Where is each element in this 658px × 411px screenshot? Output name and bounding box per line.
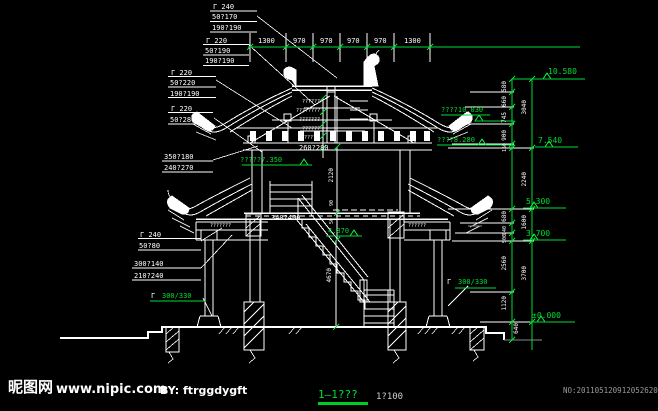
stack1-line2: 50?170 — [212, 13, 237, 21]
elevation-10030: ????10.030 — [441, 106, 483, 114]
stack5-line2: 240?270 — [164, 164, 194, 172]
top-dim-970-4: 970 — [374, 37, 387, 45]
dim-4670: 4670 — [326, 268, 334, 282]
top-dim-970-1: 970 — [293, 37, 306, 45]
dim-50: 50 — [330, 218, 335, 224]
stack4-line2: 50?280 — [170, 116, 195, 124]
stack3-line3: 190?190 — [170, 90, 200, 98]
roof-note-5: ????? — [301, 136, 316, 141]
stack6-line1: Γ 240 — [140, 231, 161, 239]
elevation-3700: 3.700 — [526, 230, 550, 238]
site-logo[interactable]: 昵图网 — [8, 383, 53, 391]
dim-680: 680 — [501, 211, 509, 222]
stack2-line3: 190?190 — [205, 57, 235, 65]
drawing-title: 1—1??? — [318, 391, 358, 399]
drawing-scale: 1?100 — [376, 393, 403, 401]
stack2-line2: 50?190 — [205, 47, 230, 55]
top-dim-1300-right: 1300 — [404, 37, 421, 45]
beam-tiny-note-left: ??????? — [210, 224, 231, 229]
elevation-5300: 5.300 — [526, 198, 550, 206]
dim-500: 500 — [503, 234, 508, 243]
elevation-7540: 7.540 — [538, 137, 562, 145]
stack3-line2: 50?220 — [170, 79, 195, 87]
top-dim-1300-left: 1300 — [258, 37, 275, 45]
bracket-right-marker: Γ — [447, 278, 451, 286]
stack6-line2: 50?80 — [139, 242, 160, 250]
beam-tiny-note-right: ?????? — [408, 224, 426, 229]
white-linework — [60, 11, 534, 363]
dim-3040: 3040 — [521, 100, 529, 114]
floor-beam-label: 340?400 — [271, 214, 301, 222]
site-url-link[interactable]: www.nipic.com — [56, 386, 166, 394]
floor-elevation-label: ?????7.350 — [240, 156, 282, 164]
stack7-line2: 210?240 — [134, 272, 164, 280]
dim-150: 150 — [503, 143, 508, 152]
stack5-line1: 350?180 — [164, 153, 194, 161]
stack1-line3: 190?190 — [212, 24, 242, 32]
stack7-line1: 300?140 — [134, 260, 164, 268]
dim-745: 745 — [501, 112, 509, 123]
dim-900: 900 — [501, 130, 509, 141]
stack1-line1: Γ 240 — [213, 3, 234, 11]
upper-beam-label: 260?280 — [299, 144, 329, 152]
dim-2560: 2560 — [501, 256, 509, 270]
dim-580: 580 — [501, 81, 509, 92]
roof-note-3: ??????? — [299, 118, 320, 123]
stack2-line1: Γ 220 — [206, 37, 227, 45]
bracket-right-value: 300/330 — [458, 278, 488, 286]
roof-note-2: ???????? — [296, 109, 320, 114]
elevation-0000: ±0.000 — [532, 312, 561, 320]
dim-90: 90 — [330, 200, 335, 206]
roof-note-4: ?????? — [302, 127, 320, 132]
serial-number: NO:20110512091205262000 — [563, 387, 658, 395]
byline: BY: ftrggdygft — [160, 387, 247, 395]
stair-elevation-label: 4.870 — [328, 227, 349, 235]
dim-660: 660 — [501, 96, 509, 107]
roof-note-1: ?????? — [302, 100, 320, 105]
title-underline — [318, 402, 368, 405]
dim-1120: 1120 — [501, 296, 509, 310]
dim-3700: 3700 — [521, 266, 529, 280]
top-dim-970-3: 970 — [347, 37, 360, 45]
elevation-8280: ????8.280 — [437, 136, 475, 144]
stack4-line1: Γ 220 — [171, 105, 192, 113]
dim-1600: 1600 — [521, 215, 529, 229]
dim-2120: 2120 — [328, 168, 336, 182]
stack3-line1: Γ 220 — [171, 69, 192, 77]
dim-640: 640 — [513, 323, 521, 334]
elevation-10580: 10.580 — [548, 68, 577, 76]
cad-canvas: 1300 970 970 970 970 1300 Γ 240 50?170 1… — [0, 0, 658, 411]
dim-2240: 2240 — [521, 172, 529, 186]
bracket-left-marker: Γ — [151, 292, 155, 300]
top-dim-970-2: 970 — [320, 37, 333, 45]
bracket-left-value: 300/330 — [162, 292, 192, 300]
